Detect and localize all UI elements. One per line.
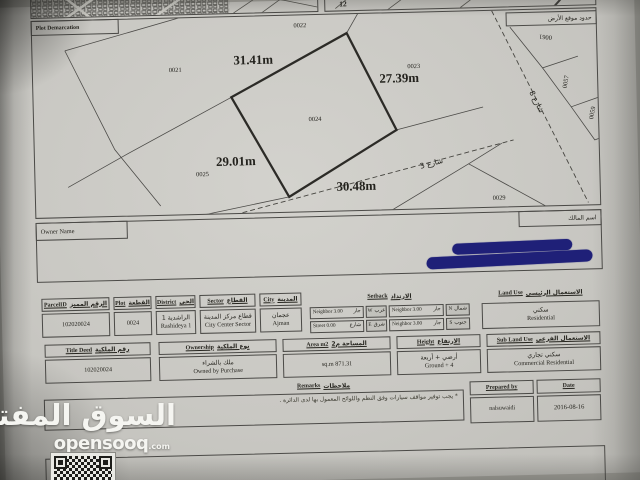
ownership-header: Ownership نوع الملكية	[158, 339, 276, 355]
setback-n-dir: N شمال	[446, 303, 470, 316]
prepared-by-header: Prepared by	[469, 380, 533, 396]
plot-id-0024: 0024	[309, 116, 323, 123]
parcel-id-value: 102020024	[42, 312, 111, 338]
parcel-id-header: ParcelID الرقم المميز	[41, 297, 109, 312]
street-8-label: شارع 8	[527, 89, 546, 114]
setback-s-dir: S جنوب	[446, 317, 470, 330]
date-header: Date	[536, 378, 600, 394]
city-header: City المدينة	[259, 292, 301, 306]
bottom-empty-panel	[45, 445, 606, 480]
dim-left-label: 29.01m	[216, 154, 256, 169]
title-deed-value: 102020024	[45, 357, 152, 384]
height-value: أرضي + أربعة Ground + 4	[397, 349, 482, 375]
dim-top-label: 31.41m	[233, 53, 273, 68]
setback-n-value: Neighbor 3.00 جار	[389, 304, 444, 317]
setback-header: Setback الارتداد	[309, 288, 469, 304]
area-value: sq.m 871.31	[283, 351, 392, 378]
sub-land-use-value: سكني تجاري Commercial Residential	[487, 346, 602, 373]
plot-demarcation-title-ar-box: حدود موقع الأرض	[505, 10, 596, 26]
title-deed-header: Title Deed رقم الملكية	[44, 342, 150, 358]
district-value: الراشدية 1 Rashideya 1	[156, 310, 197, 335]
plot-id-0021: 0021	[169, 67, 182, 74]
plot-demarcation-title-box: Plot Demarcation	[31, 19, 119, 36]
dim-right-label: 27.39m	[379, 71, 419, 86]
sector-header: Sector القطاع	[199, 294, 255, 308]
setback-w-dir: W غرب	[366, 305, 387, 318]
plot-id-0061: 0061	[539, 33, 552, 41]
owner-name-label-ar-box: اسم المالك	[518, 209, 601, 227]
street-3-label: شارع 3	[419, 156, 444, 171]
owner-name-label-box: Owner Name	[35, 221, 127, 241]
overview-plot-label: 12	[339, 0, 347, 8]
ownership-value: ملك بالشراء Owned by Purchase	[159, 354, 278, 381]
land-use-header: Land Use الاستعمال الرئيسي	[479, 285, 601, 300]
scanned-land-document: 12	[0, 0, 640, 480]
plot-id-0022: 0022	[293, 22, 306, 29]
plot-id-0059: 0059	[588, 106, 597, 120]
date-value: 2016-08-16	[537, 394, 602, 422]
setback-e-value: Street 0.00 شارع	[310, 320, 364, 333]
remarks-note: * يجب توفير مواقف سيارات وفق النظم واللو…	[279, 394, 458, 421]
setback-e-dir: E شرق	[366, 319, 387, 332]
owner-name-label-ar: اسم المالك	[568, 214, 596, 222]
qr-finder-top-right	[99, 456, 112, 469]
land-use-value: سكني Residential	[482, 300, 601, 329]
dim-bottom-label: 30.48m	[336, 179, 376, 194]
plot-id-0029: 0029	[493, 195, 506, 202]
plot-header: Plot القطعة	[113, 296, 151, 310]
remarks-note-box: * يجب توفير مواقف سيارات وفق النظم واللو…	[44, 390, 465, 431]
sector-value: قطاع مركز المدينة City Center Sector	[200, 309, 257, 334]
setback-s-value: Neighbor 3.00 جار	[389, 318, 444, 331]
parcel-boundaries	[64, 8, 600, 218]
height-header: Height الارتفاع	[396, 334, 480, 349]
city-value: عجمان Ajman	[260, 307, 303, 332]
setback-w-value: Neighbor 3.00 جار	[310, 306, 364, 319]
owner-name-label: Owner Name	[41, 227, 75, 235]
prepared-by-value: nalsuwaidi	[470, 396, 535, 424]
plot-demarcation-panel: 31.41m 27.39m 29.01m 30.48m 0024 0021 00…	[31, 7, 602, 219]
plot-demarcation-title: Plot Demarcation	[36, 24, 80, 31]
plot-demarcation-title-ar: حدود موقع الأرض	[548, 14, 592, 22]
plot-id-0023: 0023	[407, 63, 420, 70]
sub-land-use-header: Sub Land Use الاستعمال الفرعي	[486, 331, 600, 347]
qr-finder-top-left	[54, 456, 67, 469]
plot-id-0057: 0057	[562, 74, 571, 89]
qr-code	[50, 452, 116, 480]
street-centerlines	[184, 8, 589, 217]
area-header: Area m2 المساحة م2	[282, 336, 390, 352]
district-header: District الحي	[155, 295, 195, 309]
plot-id-0025: 0025	[196, 171, 209, 178]
plot-value: 0024	[114, 311, 153, 336]
plot-demarcation-drawing: 31.41m 27.39m 29.01m 30.48m 0024 0021 00…	[32, 8, 601, 218]
